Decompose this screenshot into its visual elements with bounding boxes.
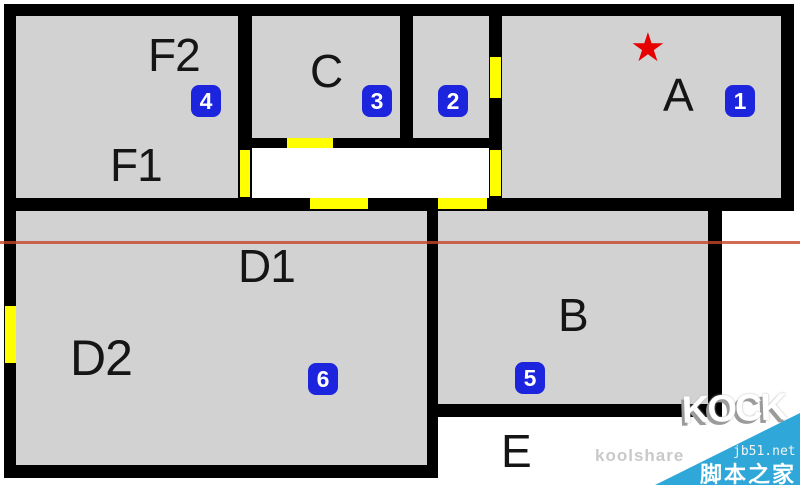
door-marker-room-b	[438, 198, 487, 209]
room-label-d1: D1	[238, 243, 295, 289]
room-label-a: A	[663, 72, 693, 118]
watermark-site-name: 脚本之家	[700, 457, 796, 485]
wall-middle-horizontal	[4, 198, 794, 211]
door-marker-room-d1	[310, 198, 368, 209]
marker-badge-1: 1	[725, 85, 755, 117]
door-marker-room-c	[287, 138, 333, 148]
watermark-koolshare-text: koolshare	[595, 446, 684, 466]
marker-badge-6: 6	[308, 363, 338, 395]
room-label-e: E	[501, 428, 531, 474]
door-marker-room-a-upper	[490, 57, 501, 98]
marker-badge-4: 4	[191, 85, 221, 117]
wall-top-exterior	[4, 4, 794, 16]
floor-plan-canvas: F2 F1 C A D1 D2 B E 1 2 3 4 5 6 ★ koolsh…	[0, 0, 800, 485]
room-label-b: B	[558, 292, 588, 338]
room-label-f1: F1	[110, 142, 162, 188]
wall-right-room-a	[781, 4, 794, 211]
wall-d-b-divider	[427, 211, 438, 478]
door-marker-corridor-left	[240, 150, 250, 197]
door-marker-room-a-lower	[490, 150, 501, 196]
room-2-area	[413, 16, 489, 138]
wall-bottom-exterior	[4, 465, 438, 478]
room-label-d2: D2	[70, 333, 132, 383]
wall-c-room2-divider	[400, 4, 413, 148]
marker-badge-2: 2	[438, 85, 468, 117]
wall-b-bottom	[427, 404, 722, 417]
room-label-c: C	[310, 48, 342, 94]
watermark-koolshare-logo: KOCK	[681, 386, 786, 433]
marker-badge-5: 5	[515, 362, 545, 394]
window-marker-left-wall	[5, 306, 16, 363]
room-label-f2: F2	[148, 32, 200, 78]
marker-badge-3: 3	[362, 85, 392, 117]
star-icon: ★	[630, 28, 666, 68]
red-reference-line	[0, 241, 800, 244]
